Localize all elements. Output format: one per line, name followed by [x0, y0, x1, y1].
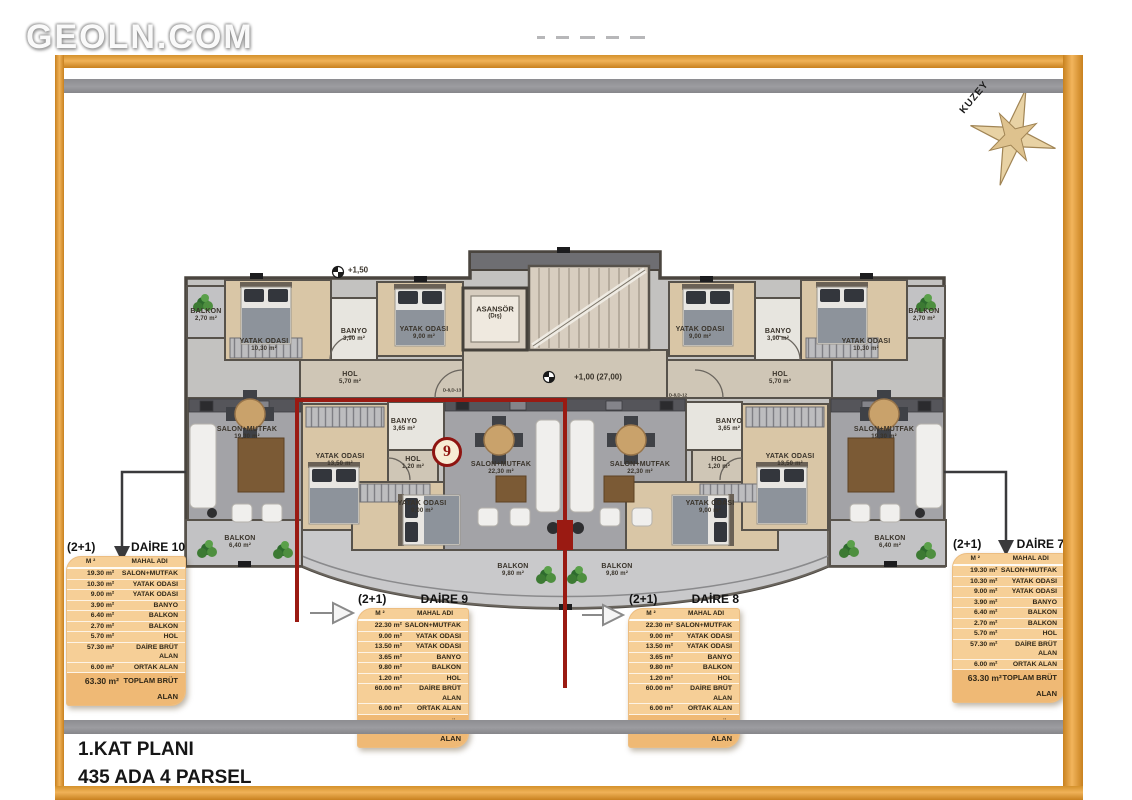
- room-label-yatak-odasi-21: YATAK ODASI10,30 m²: [842, 338, 891, 354]
- gray-bar-bottom: [64, 720, 1063, 734]
- room-label-yatak-odasi-1: YATAK ODASI10,30 m²: [240, 338, 289, 354]
- table-row: 6.00 m²ORTAK ALAN: [358, 704, 468, 715]
- room-label-balkon-6: BALKON6,40 m²: [224, 535, 255, 551]
- col-m2: M ²: [67, 557, 114, 567]
- room-label-banyo-14: BANYO3,65 m²: [716, 418, 742, 434]
- table-row: 6.40 m²BALKON: [67, 611, 185, 622]
- table-row: 22.30 m²SALON+MUTFAK: [629, 621, 739, 632]
- room-label-hol-9: HOL1,20 m²: [402, 456, 424, 472]
- parcel-title: 435 ADA 4 PARSEL: [78, 764, 252, 792]
- room-label-balkon-0: BALKON2,70 m²: [190, 308, 221, 324]
- elevation-mid-label: +1,00 (27,00): [574, 373, 622, 382]
- col-mahal-adi: MAHAL ADI: [997, 554, 1064, 564]
- table-row: 6.00 m²ORTAK ALAN: [629, 704, 739, 715]
- room-label-balkon-25: BALKON6,40 m²: [874, 535, 905, 551]
- table-row: 3.90 m²BANYO: [953, 598, 1064, 609]
- apartment-title: DAİRE 9: [421, 592, 468, 606]
- table-row: 9.80 m²BALKON: [358, 663, 468, 674]
- table-row: 2.70 m²BALKON: [953, 619, 1064, 630]
- room-label-balkon-22: BALKON2,70 m²: [908, 308, 939, 324]
- table-row: 57.30 m²DAİRE BRÜT ALAN: [67, 643, 185, 663]
- apartment-type: (2+1): [953, 537, 981, 551]
- room-label-balkon-18: BALKON9,80 m²: [601, 563, 632, 579]
- table-row: 60.00 m²DAİRE BRÜT ALAN: [358, 684, 468, 704]
- table-row: 10.30 m²YATAK ODASI: [953, 577, 1064, 588]
- door-tag-left: D-8,D-13: [443, 388, 461, 393]
- table-row: 57.30 m²DAİRE BRÜT ALAN: [953, 640, 1064, 660]
- room-label-yatak-odasi-7: YATAK ODASI13,50 m²: [316, 453, 365, 469]
- table-row: 9.00 m²YATAK ODASI: [629, 632, 739, 643]
- table-row: 13.50 m²YATAK ODASI: [629, 642, 739, 653]
- room-label-yatak-odasi-10: YATAK ODASI9,00 m²: [398, 500, 447, 516]
- room-label-yatak-odasi-19: YATAK ODASI9,00 m²: [676, 326, 725, 342]
- table-daire-7: (2+1)DAİRE 7 M ²MAHAL ADI 19.30 m²SALON+…: [952, 537, 1065, 703]
- table-total-row: 63.30 m²TOPLAM BRÜT ALAN: [953, 670, 1064, 702]
- door-tag-right: D-8,D-12: [669, 393, 687, 398]
- table-row: 6.00 m²ORTAK ALAN: [67, 663, 185, 674]
- col-m2: M ²: [629, 609, 673, 619]
- room-label-banyo-8: BANYO3,65 m²: [391, 418, 417, 434]
- table-row: 3.65 m²BANYO: [629, 653, 739, 664]
- table-row: 13.50 m²YATAK ODASI: [358, 642, 468, 653]
- table-row: 9.00 m²YATAK ODASI: [953, 587, 1064, 598]
- table-row: 19.30 m²SALON+MUTFAK: [67, 569, 185, 580]
- table-row: 5.70 m²HOL: [67, 632, 185, 643]
- floor-title: 1.KAT PLANI: [78, 736, 252, 764]
- plan-title-block: 1.KAT PLANI 435 ADA 4 PARSEL: [78, 736, 252, 792]
- room-label-hol-23: HOL5,70 m²: [769, 371, 791, 387]
- table-daire-10: (2+1)DAİRE 10 M ²MAHAL ADI 19.30 m²SALON…: [66, 540, 186, 706]
- col-m2: M ²: [358, 609, 402, 619]
- frame-left: [55, 55, 64, 800]
- table-row: 19.30 m²SALON+MUTFAK: [953, 566, 1064, 577]
- apartment-title: DAİRE 8: [692, 592, 739, 606]
- room-label-salon-mutfak-24: SALON+MUTFAK19,30 m²: [854, 426, 914, 442]
- apartment-type: (2+1): [629, 592, 657, 606]
- table-row: 3.65 m²BANYO: [358, 653, 468, 664]
- col-mahal-adi: MAHAL ADI: [402, 609, 468, 619]
- room-label-salon-mutfak-5: SALON+MUTFAK19,30 m²: [217, 426, 277, 442]
- room-label-yatak-odasi-17: YATAK ODASI13,50 m²: [766, 453, 815, 469]
- room-label-yatak-odasi-16: YATAK ODASI9,00 m²: [686, 500, 735, 516]
- room-label-yatak-odasi-3: YATAK ODASI9,00 m²: [400, 326, 449, 342]
- table-row: 9.00 m²YATAK ODASI: [358, 632, 468, 643]
- table-row: 3.90 m²BANYO: [67, 601, 185, 612]
- geoln-watermark: GEOLN.COM: [26, 18, 254, 57]
- room-label-salon-mutfak-13: SALON+MUTFAK22,30 m²: [610, 461, 670, 477]
- table-row: 60.00 m²DAİRE BRÜT ALAN: [629, 684, 739, 704]
- room-label-hol-4: HOL5,70 m²: [339, 371, 361, 387]
- gray-bar-top: [64, 79, 1063, 93]
- faded-logo-marks: [537, 36, 645, 39]
- col-m2: M ²: [953, 554, 997, 564]
- table-row: 10.30 m²YATAK ODASI: [67, 580, 185, 591]
- room-label-balkon-12: BALKON9,80 m²: [497, 563, 528, 579]
- table-row: 5.70 m²HOL: [953, 629, 1064, 640]
- room-label-banyo-2: BANYO3,90 m²: [341, 328, 367, 344]
- table-row: 9.00 m²YATAK ODASI: [67, 590, 185, 601]
- table-row: 2.70 m²BALKON: [67, 622, 185, 633]
- elevation-top-label: +1,50: [348, 266, 368, 275]
- apartment-title: DAİRE 10: [131, 540, 185, 554]
- floor-plan-page: BALKON2,70 m²YATAK ODASI10,30 m²BANYO3,9…: [0, 0, 1132, 800]
- apartment-type: (2+1): [358, 592, 386, 606]
- col-mahal-adi: MAHAL ADI: [673, 609, 739, 619]
- frame-right: [1063, 55, 1083, 800]
- table-total-row: 63.30 m²TOPLAM BRÜT ALAN: [67, 673, 185, 705]
- room-label-banyo-20: BANYO3,90 m²: [765, 328, 791, 344]
- table-row: 9.80 m²BALKON: [629, 663, 739, 674]
- col-mahal-adi: MAHAL ADI: [114, 557, 185, 567]
- apartment9-badge: 9: [432, 437, 462, 467]
- elevator-label: ASANSÖR (Dış): [476, 305, 514, 320]
- room-label-salon-mutfak-11: SALON+MUTFAK22,30 m²: [471, 461, 531, 477]
- room-label-hol-15: HOL1,20 m²: [708, 456, 730, 472]
- table-row: 1.20 m²HOL: [358, 674, 468, 685]
- apartment-type: (2+1): [67, 540, 95, 554]
- table-row: 22.30 m²SALON+MUTFAK: [358, 621, 468, 632]
- table-row: 1.20 m²HOL: [629, 674, 739, 685]
- table-row: 6.00 m²ORTAK ALAN: [953, 660, 1064, 671]
- apartment-title: DAİRE 7: [1017, 537, 1064, 551]
- table-row: 6.40 m²BALKON: [953, 608, 1064, 619]
